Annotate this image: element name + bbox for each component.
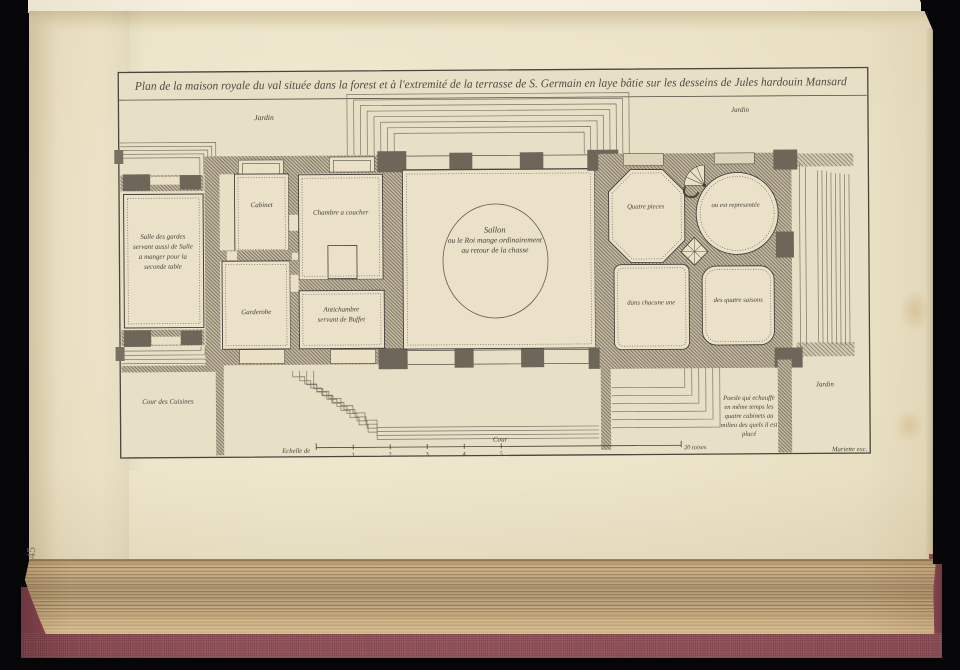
svg-text:3: 3 <box>426 452 429 458</box>
svg-text:2: 2 <box>389 452 392 458</box>
svg-text:ou est representée: ou est representée <box>712 202 760 209</box>
svg-text:des quatre saisons: des quatre saisons <box>714 297 764 304</box>
svg-text:Sallon: Sallon <box>484 224 506 234</box>
svg-text:Chambre a coucher: Chambre a coucher <box>313 208 369 216</box>
svg-text:1: 1 <box>352 452 355 458</box>
svg-text:4: 4 <box>463 452 466 458</box>
svg-text:Quatre pieces: Quatre pieces <box>627 203 665 210</box>
svg-text:ou le Roi mange ordinairement: ou le Roi mange ordinairement <box>448 235 543 245</box>
svg-text:a manger pour la: a manger pour la <box>139 254 188 261</box>
svg-text:quatre cabinets au: quatre cabinets au <box>725 413 775 420</box>
svg-text:au retour de la chasse: au retour de la chasse <box>461 245 529 254</box>
svg-text:Jardin: Jardin <box>816 380 835 388</box>
svg-text:20 toises: 20 toises <box>684 444 707 451</box>
svg-text:dans chacune une: dans chacune une <box>627 299 675 306</box>
svg-text:Jardin: Jardin <box>731 106 750 114</box>
svg-text:milieu des quels il est: milieu des quels il est <box>721 422 778 429</box>
svg-text:en même temps les: en même temps les <box>724 404 774 411</box>
svg-text:Cour des Cuisines: Cour des Cuisines <box>142 398 194 406</box>
svg-text:Garderobe: Garderobe <box>241 308 271 316</box>
svg-text:Mariette exc.: Mariette exc. <box>831 446 868 453</box>
svg-text:Cabinet: Cabinet <box>250 201 273 209</box>
svg-text:Cour: Cour <box>493 435 508 443</box>
svg-text:Salle des gardes: Salle des gardes <box>140 234 185 241</box>
svg-text:Echelle de: Echelle de <box>281 448 310 455</box>
svg-text:servant de Buffet: servant de Buffet <box>318 315 367 323</box>
svg-text:servant aussi de Salle: servant aussi de Salle <box>133 244 193 251</box>
svg-text:Antichambre: Antichambre <box>322 305 359 313</box>
svg-text:placé: placé <box>741 431 757 438</box>
svg-text:Jardin: Jardin <box>254 113 274 122</box>
svg-text:Poesle qui echauffe: Poesle qui echauffe <box>722 395 775 402</box>
svg-text:5: 5 <box>500 451 503 457</box>
svg-text:seconde table: seconde table <box>144 264 182 271</box>
